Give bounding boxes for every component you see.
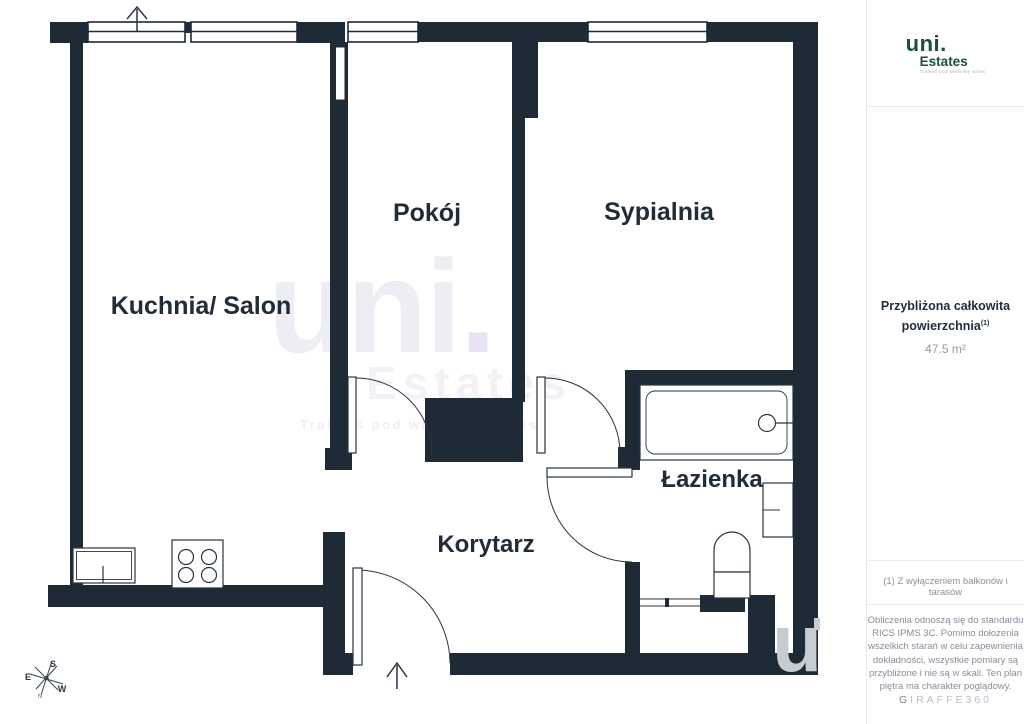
total-area-title-line2: powierzchnia — [902, 319, 981, 333]
entrance-door — [353, 568, 450, 665]
stove — [172, 540, 223, 588]
sidebar-divider — [867, 560, 1024, 561]
toilet — [714, 532, 750, 598]
window-north-3 — [348, 22, 418, 42]
total-area-block: Przybliżona całkowita powierzchnia(1) 47… — [867, 298, 1024, 356]
compass-label-e: E — [25, 672, 31, 682]
wash-basin — [763, 483, 793, 537]
entrance-arrow-icon — [387, 663, 407, 689]
total-area-title: Przybliżona całkowita powierzchnia(1) — [867, 298, 1024, 335]
room-label-korytarz: Korytarz — [437, 531, 534, 558]
total-area-footnote-ref: (1) — [981, 320, 990, 327]
logo-uni-text: uni. — [906, 34, 986, 54]
disclaimer-line: Obliczenia odnoszą się do standardu — [868, 615, 1024, 626]
room-label-sypialnia: Sypialnia — [604, 198, 715, 226]
compass: E S W N — [25, 659, 67, 700]
kitchen-sink-counter — [73, 548, 135, 583]
disclaimer-line: piętra ma charakter poglądowy. — [880, 681, 1012, 692]
sidebar: uni. Estates Trafiłeś pod właściwy adres… — [866, 0, 1024, 724]
windows-north — [88, 22, 707, 42]
giraffe360-brand: GIRAFFE360 — [867, 694, 1024, 706]
giraffe360-brand-first: G — [899, 694, 910, 706]
compass-label-n: N — [38, 694, 42, 700]
total-area-title-line1: Przybliżona całkowita — [881, 299, 1010, 313]
window-north-2 — [191, 22, 297, 42]
room-label-kuchnia-salon: Kuchnia/ Salon — [111, 292, 292, 320]
giraffe360-brand-rest: IRAFFE360 — [910, 694, 992, 706]
floor-plan-svg: uni. Estates Trafiłeś pod właściwy adres — [0, 0, 866, 724]
disclaimer-line: wszelkich starań w celu zapewnienia — [868, 641, 1023, 652]
watermark-uni-estates: uni. Estates Trafiłeś pod właściwy adres — [268, 233, 572, 432]
disclaimer-line: przybliżone i nie są w skali. Ten plan — [869, 668, 1022, 679]
logo-estates-text: Estates — [920, 54, 986, 69]
bathtub — [640, 385, 793, 460]
door-lazienka — [547, 468, 632, 562]
sidebar-divider — [867, 604, 1024, 605]
total-area-value: 47.5 m² — [867, 342, 1024, 356]
window-north-4 — [588, 22, 707, 42]
brand-logo: uni. Estates Trafiłeś pod właściwy adres — [867, 34, 1024, 78]
disclaimer-line: dokładności, wszystkie pomiary są — [873, 655, 1018, 666]
compass-label-s: S — [50, 659, 56, 669]
compass-label-w: W — [58, 684, 67, 694]
area-footnote: (1) Z wyłączeniem balkonów i tarasów — [867, 576, 1024, 598]
disclaimer-text: Obliczenia odnoszą się do standardu RICS… — [867, 614, 1024, 693]
sidebar-divider — [867, 106, 1024, 107]
watermark-corner: u — [772, 598, 822, 689]
room-label-pokoj: Pokój — [393, 199, 461, 227]
watermark-corner-letter: u — [772, 598, 822, 689]
floor-plan-page: uni. Estates Trafiłeś pod właściwy adres — [0, 0, 1024, 724]
room-label-lazienka: Łazienka — [661, 466, 763, 493]
disclaimer-line: RICS IPMS 3C. Pomimo dołożenia — [872, 628, 1019, 639]
wall-niche — [336, 47, 346, 100]
radiator — [638, 598, 700, 607]
logo-tagline: Trafiłeś pod właściwy adres — [920, 69, 986, 74]
